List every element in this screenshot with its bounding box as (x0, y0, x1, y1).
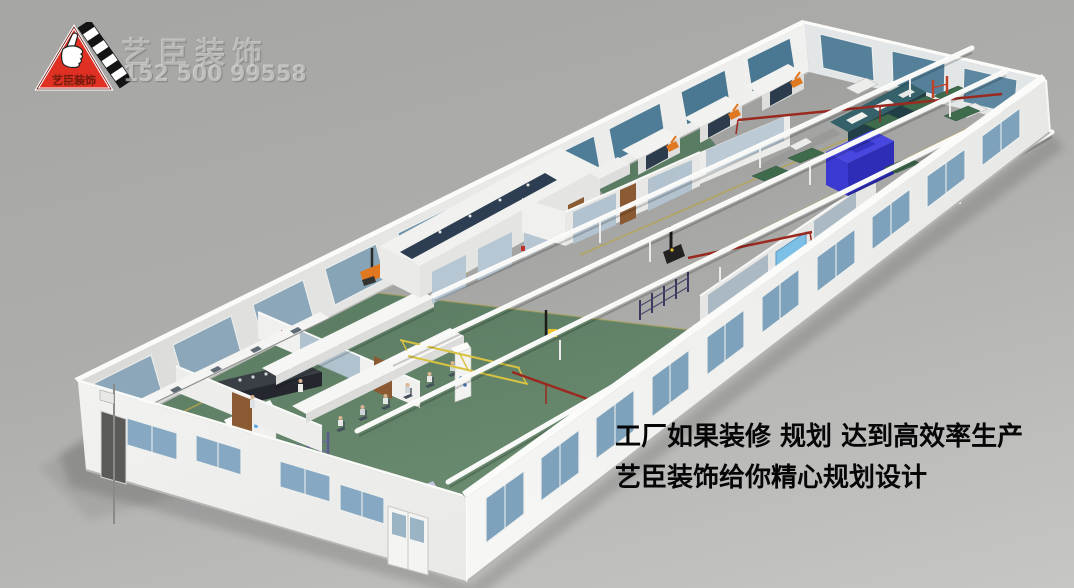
watermark-phone-number: 152 500 99558 (123, 62, 307, 87)
factory-3d-rendering (0, 0, 1074, 588)
logo-text: 艺臣装饰 (52, 73, 96, 87)
company-logo: 艺臣装饰 (30, 22, 132, 102)
entry-door-white (388, 506, 428, 575)
extinguisher-mark (521, 246, 525, 251)
marketing-slogan: 工厂如果装修 规划 达到高效率生产 艺臣装饰给你精心规划设计 (615, 417, 1023, 499)
slogan-line-2: 艺臣装饰给你精心规划设计 (615, 458, 1023, 499)
promo-render-canvas: 艺臣装饰 艺臣装饰 152 500 99558 工厂如果装修 规划 达到高效率生… (0, 0, 1074, 588)
slogan-line-1: 工厂如果装修 规划 达到高效率生产 (615, 417, 1023, 458)
